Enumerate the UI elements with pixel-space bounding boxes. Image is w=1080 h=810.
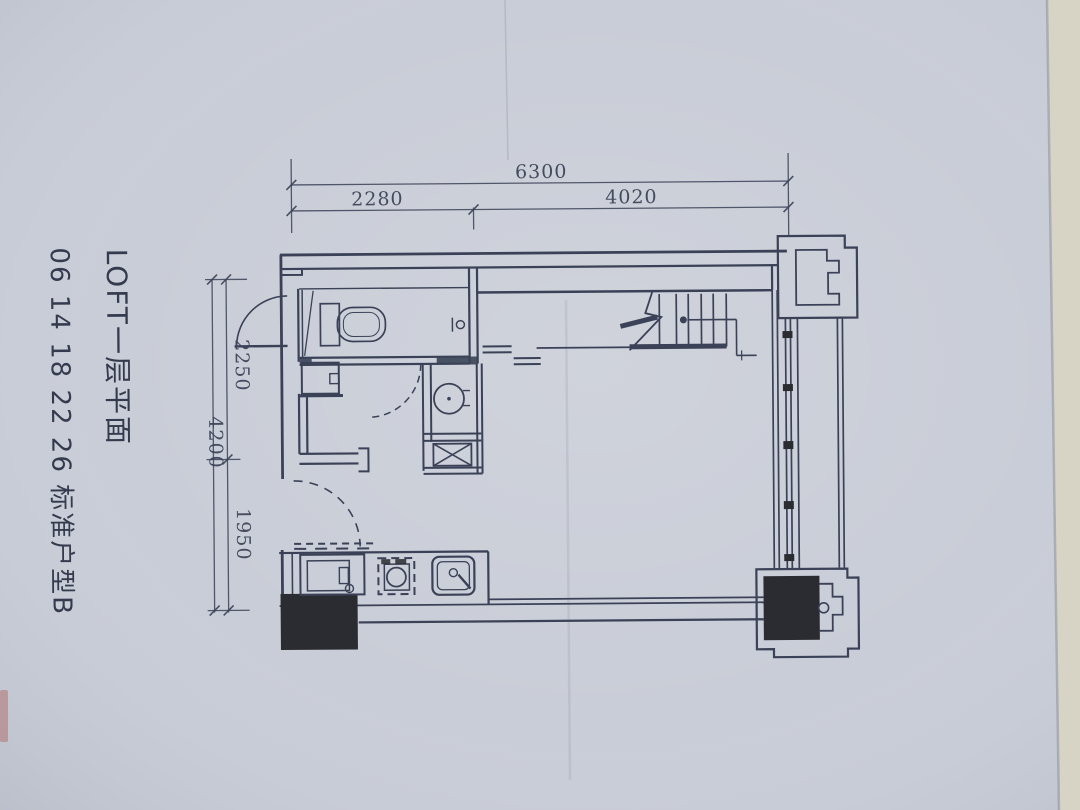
plan-title: LOFT一层平面 <box>100 249 135 447</box>
floorplan-drawing: 6300 2280 4020 2250 4200 1950 LOFT一层平面 0… <box>0 0 1080 810</box>
unit-type-label: 06 14 18 22 26 标准户型B <box>44 247 77 616</box>
floorplan-photo: 6300 2280 4020 2250 4200 1950 LOFT一层平面 0… <box>0 0 1080 810</box>
dim-top-total: 6300 <box>515 161 568 183</box>
dim-left-total: 4200 <box>204 416 226 469</box>
structural-column-fill <box>763 576 820 640</box>
column-bottom-left <box>281 593 358 650</box>
stair-handrail <box>537 347 631 348</box>
dim-left-bottom-segment: 1950 <box>232 508 254 561</box>
photo-vignette <box>0 0 1080 810</box>
red-ink-smudge <box>0 690 8 742</box>
dim-top-left-segment: 2280 <box>351 188 404 210</box>
stair-stringer <box>630 346 727 347</box>
dim-top-right-segment: 4020 <box>605 186 658 208</box>
